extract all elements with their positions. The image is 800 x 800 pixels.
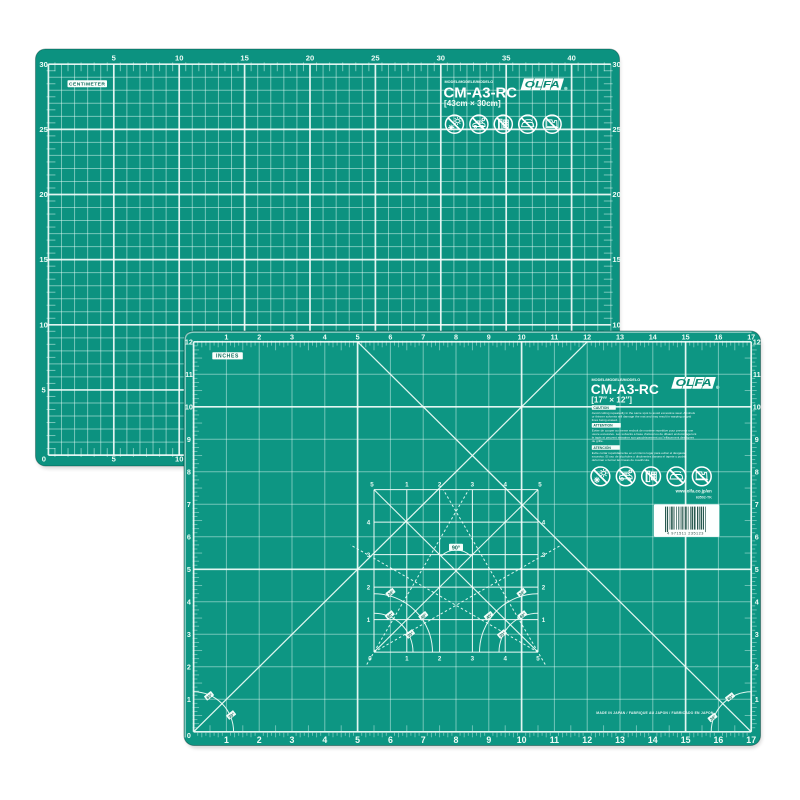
svg-text:30: 30 [437, 53, 445, 62]
svg-text:de grille.: de grille. [592, 439, 604, 443]
svg-text:11: 11 [550, 735, 559, 745]
svg-text:9: 9 [187, 435, 191, 444]
svg-text:35: 35 [502, 53, 511, 62]
svg-text:10: 10 [517, 735, 527, 745]
svg-text:4: 4 [503, 656, 507, 663]
svg-text:5: 5 [355, 735, 360, 745]
svg-text:2: 2 [257, 735, 262, 745]
svg-text:6: 6 [388, 735, 393, 745]
svg-text:25: 25 [612, 125, 621, 134]
svg-text:le tapis et peuvent entrainer: le tapis et peuvent entrainer son gauchi… [592, 436, 695, 440]
svg-text:2: 2 [438, 482, 442, 489]
svg-text:30: 30 [612, 60, 620, 69]
svg-text:20: 20 [612, 190, 620, 199]
svg-text:7: 7 [187, 500, 191, 509]
svg-text:15: 15 [240, 53, 249, 62]
svg-text:15: 15 [681, 735, 691, 745]
svg-text:5: 5 [536, 656, 540, 663]
svg-text:1: 1 [542, 617, 546, 624]
svg-text:90°: 90° [452, 545, 460, 551]
svg-text:4: 4 [323, 333, 327, 342]
svg-text:1: 1 [405, 482, 409, 489]
svg-text:13: 13 [616, 333, 624, 342]
svg-text:deformar o borrar las lineas d: deformar o borrar las lineas de cuadricu… [592, 458, 650, 462]
svg-text:CM-A3-RC: CM-A3-RC [591, 381, 659, 397]
svg-text:1: 1 [405, 656, 409, 663]
svg-text:12: 12 [753, 337, 761, 346]
svg-text:5: 5 [370, 482, 374, 489]
svg-text:ATTENTION: ATTENTION [593, 424, 613, 428]
svg-text:30: 30 [39, 60, 47, 69]
svg-text:1: 1 [367, 617, 371, 624]
svg-text:10: 10 [185, 402, 193, 411]
svg-text:OLFA: OLFA [525, 79, 560, 90]
svg-text:63502-TK: 63502-TK [696, 496, 712, 500]
svg-text:12: 12 [185, 337, 193, 346]
svg-text:10: 10 [175, 455, 183, 464]
svg-text:CAUTION: CAUTION [593, 406, 609, 410]
svg-text:15: 15 [682, 333, 690, 342]
svg-text:0: 0 [187, 731, 191, 740]
svg-text:10: 10 [753, 402, 761, 411]
svg-text:6: 6 [187, 532, 191, 541]
svg-text:2: 2 [367, 584, 371, 591]
svg-text:5: 5 [538, 482, 542, 489]
svg-text:20: 20 [39, 190, 47, 199]
svg-text:12: 12 [583, 333, 591, 342]
svg-text:11: 11 [753, 370, 761, 379]
svg-text:9: 9 [486, 735, 491, 745]
svg-text:12: 12 [582, 735, 592, 745]
svg-text:13: 13 [615, 735, 625, 745]
svg-text:OLFA: OLFA [675, 378, 711, 389]
svg-text:8: 8 [454, 735, 459, 745]
svg-text:4: 4 [187, 597, 191, 606]
svg-text:25: 25 [371, 53, 380, 62]
svg-text:8: 8 [187, 467, 191, 476]
svg-text:10: 10 [39, 320, 47, 329]
svg-text:4: 4 [542, 519, 546, 526]
svg-text:4: 4 [503, 482, 507, 489]
svg-text:15: 15 [39, 255, 48, 264]
svg-text:INCHES: INCHES [216, 354, 239, 360]
svg-text:11: 11 [185, 370, 193, 379]
svg-text:8: 8 [755, 467, 759, 476]
svg-text:25: 25 [39, 125, 48, 134]
svg-text:www.olfa.co.jp/en: www.olfa.co.jp/en [675, 489, 713, 494]
svg-text:MADE IN JAPAN / FABRIQUE AU JA: MADE IN JAPAN / FABRIQUE AU JAPON / FABR… [596, 711, 714, 715]
svg-text:3: 3 [755, 630, 759, 639]
svg-text:4: 4 [322, 735, 327, 745]
svg-text:0: 0 [42, 455, 46, 464]
svg-text:2: 2 [438, 656, 442, 663]
svg-text:[43cm × 30cm]: [43cm × 30cm] [444, 99, 501, 108]
svg-text:CENTIMETER: CENTIMETER [69, 82, 105, 88]
svg-text:4: 4 [755, 597, 759, 606]
svg-text:3: 3 [542, 552, 546, 559]
svg-text:16: 16 [714, 735, 724, 745]
svg-text:MODEL/MODELE/MODELO: MODEL/MODELE/MODELO [445, 80, 494, 84]
svg-text:10: 10 [518, 333, 526, 342]
svg-text:7: 7 [421, 735, 426, 745]
svg-text:3: 3 [471, 656, 475, 663]
svg-text:9: 9 [755, 435, 759, 444]
svg-text:16: 16 [714, 333, 722, 342]
svg-text:3: 3 [187, 630, 191, 639]
svg-text:0: 0 [368, 656, 372, 663]
svg-text:lines being erased.: lines being erased. [592, 418, 618, 422]
svg-text:2: 2 [755, 662, 759, 671]
svg-text:2: 2 [187, 662, 191, 671]
svg-text:10: 10 [175, 53, 183, 62]
svg-text:7: 7 [421, 333, 425, 342]
svg-text:15: 15 [612, 255, 621, 264]
svg-text:9: 9 [487, 333, 491, 342]
svg-text:5: 5 [356, 333, 360, 342]
svg-text:14: 14 [648, 735, 658, 745]
svg-text:14: 14 [649, 333, 657, 342]
svg-text:40: 40 [567, 53, 575, 62]
svg-text:1: 1 [755, 695, 759, 704]
svg-text:4: 4 [367, 519, 371, 526]
svg-text:1: 1 [187, 695, 191, 704]
svg-text:4 971511 235123: 4 971511 235123 [667, 531, 704, 535]
svg-text:3: 3 [367, 552, 371, 559]
svg-text:2: 2 [257, 333, 261, 342]
svg-text:20: 20 [306, 53, 314, 62]
svg-text:3: 3 [290, 333, 294, 342]
svg-text:17: 17 [746, 735, 756, 745]
svg-text:8: 8 [454, 333, 458, 342]
svg-text:[17″ × 12″]: [17″ × 12″] [591, 396, 632, 405]
svg-text:10: 10 [612, 320, 620, 329]
svg-text:7: 7 [755, 500, 759, 509]
svg-text:3: 3 [471, 482, 475, 489]
svg-text:11: 11 [551, 333, 559, 342]
svg-text:1: 1 [224, 333, 228, 342]
svg-text:ATENCIÓN: ATENCIÓN [593, 445, 611, 450]
svg-text:6: 6 [388, 333, 392, 342]
svg-text:3: 3 [290, 735, 295, 745]
svg-text:1: 1 [224, 735, 229, 745]
svg-text:6: 6 [755, 532, 759, 541]
svg-text:2: 2 [542, 584, 546, 591]
svg-text:5: 5 [187, 565, 191, 574]
svg-text:5: 5 [755, 565, 759, 574]
